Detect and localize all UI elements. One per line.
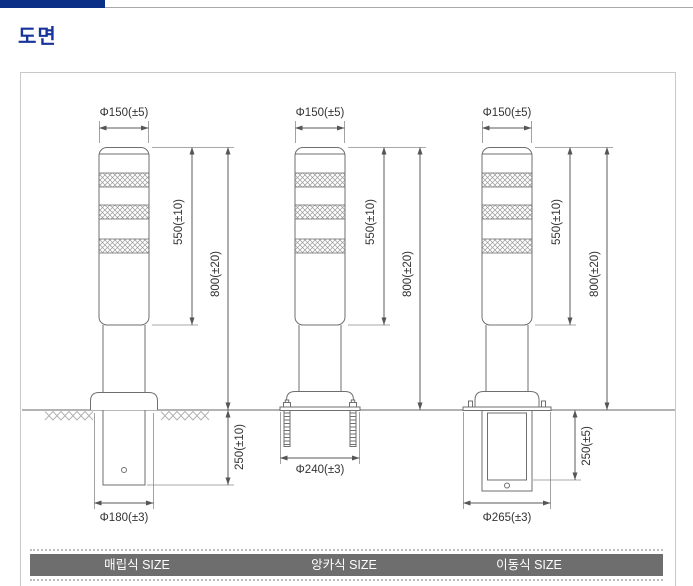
technical-drawing: Φ150(±5) 550(±10) 800(±20) 250(±10): [0, 0, 693, 586]
dim-text-above-ground-height: 800(±20): [589, 251, 601, 297]
dotted-divider-bottom: [30, 579, 663, 581]
dim-text-base-diameter: Φ240(±3): [296, 464, 345, 476]
sleeve-inner: [488, 413, 527, 480]
dim-top-diameter: Φ150(±5): [296, 107, 345, 143]
flared-base: [91, 393, 158, 411]
soil-hatch-left: [45, 412, 93, 421]
dim-text-embed-depth: 250(±10): [234, 424, 246, 470]
dim-above-ground-height: 800(±20): [210, 148, 228, 411]
reflective-stripes: [295, 173, 345, 253]
plate-pin-left: [469, 401, 473, 407]
drawing-buried-type: Φ150(±5) 550(±10) 800(±20) 250(±10): [45, 107, 246, 524]
dim-base-diameter: Φ240(±3): [281, 412, 360, 476]
dim-text-top-diameter: Φ150(±5): [100, 107, 149, 119]
drawing-anchor-type: Φ150(±5) 550(±10) 800(±20) Φ240(±3): [280, 107, 426, 476]
dim-above-ground-height: 800(±20): [589, 148, 607, 411]
flared-base: [475, 392, 539, 408]
base-plate: [463, 407, 551, 411]
buried-section: [103, 410, 145, 485]
dim-text-stripe-height: 550(±10): [173, 199, 185, 245]
dim-above-ground-height: 800(±20): [402, 148, 420, 411]
page: 도면: [0, 0, 693, 586]
anchor-bolt-right: [350, 400, 357, 447]
dim-text-above-ground-height: 800(±20): [402, 251, 414, 297]
reflective-stripes: [99, 173, 149, 253]
dim-stripe-height: 550(±10): [152, 148, 234, 326]
dim-embed-depth: 250(±10): [147, 411, 246, 486]
base-plate: [280, 407, 360, 411]
label-movable-size: 이동식 SIZE: [496, 554, 562, 576]
dim-embed-depth: 250(±5): [533, 411, 593, 481]
dim-top-diameter: Φ150(±5): [483, 107, 532, 143]
drawing-movable-type: Φ150(±5) 550(±10) 800(±20) 250(±5): [463, 107, 613, 524]
dim-text-stripe-height: 550(±10): [365, 199, 377, 245]
dim-text-stripe-height: 550(±10): [551, 199, 563, 245]
reflective-stripes: [482, 173, 532, 253]
dim-text-embed-depth: 250(±5): [581, 426, 593, 466]
dotted-divider-top: [30, 549, 663, 551]
flared-base: [287, 392, 354, 408]
dim-stripe-height: 550(±10): [535, 148, 613, 326]
anchor-bolt-left: [284, 400, 291, 447]
dim-text-base-diameter: Φ265(±3): [483, 512, 532, 524]
label-anchor-size: 앙카식 SIZE: [311, 554, 377, 576]
dim-text-top-diameter: Φ150(±5): [296, 107, 345, 119]
dim-text-base-diameter: Φ180(±3): [100, 512, 149, 524]
dim-top-diameter: Φ150(±5): [100, 107, 149, 143]
label-buried-size: 매립식 SIZE: [104, 554, 170, 576]
dim-stripe-height: 550(±10): [348, 148, 426, 326]
dim-text-top-diameter: Φ150(±5): [483, 107, 532, 119]
soil-hatch-right: [161, 412, 209, 421]
plate-pin-right: [542, 401, 546, 407]
dim-text-above-ground-height: 800(±20): [210, 251, 222, 297]
